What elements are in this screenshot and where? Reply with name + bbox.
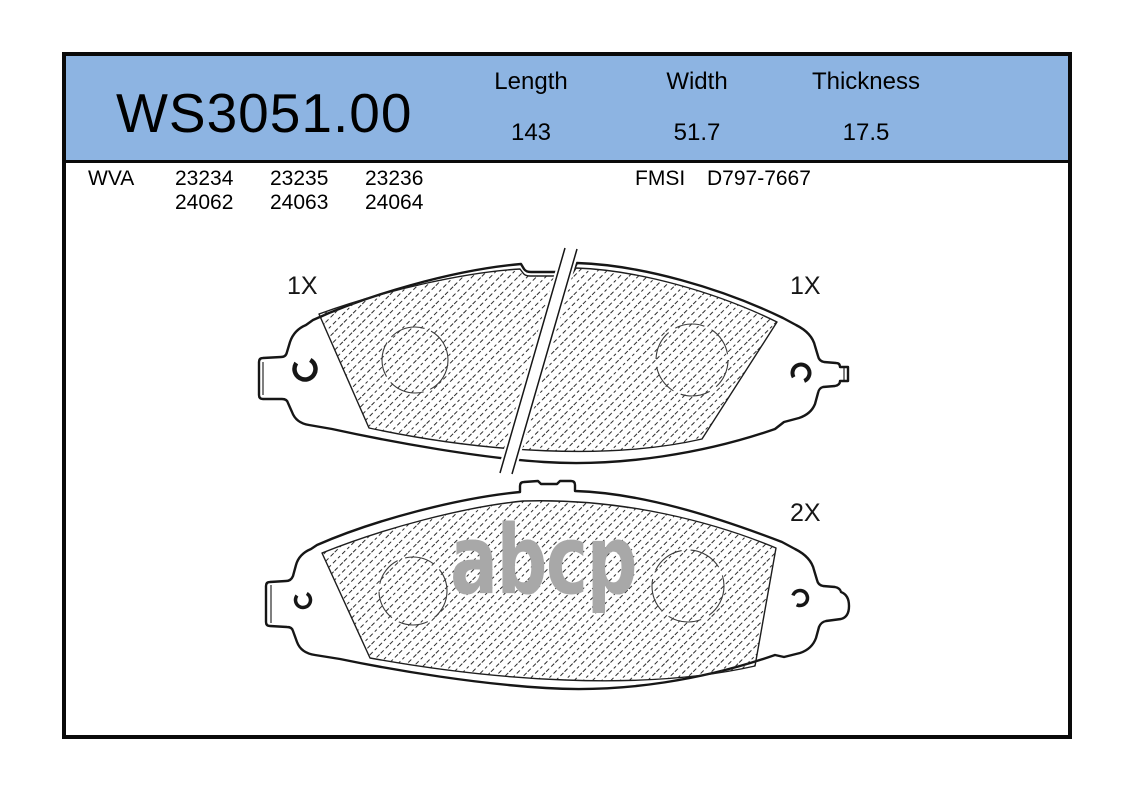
fmsi-value: D797-7667 (707, 168, 811, 190)
watermark-logo: abcp (450, 506, 636, 616)
fmsi-label: FMSI (635, 168, 685, 190)
wva-number: 23236 (365, 168, 423, 190)
brake-pad-drawing: abcp 1X 1X 2X (66, 210, 1068, 735)
brake-pad-top (259, 248, 848, 474)
catalog-page: WS3051.00 Length 143 Width 51.7 Thicknes… (0, 0, 1135, 800)
wva-label: WVA (88, 168, 134, 190)
spec-width-value: 51.7 (602, 120, 792, 145)
spec-length: Length 143 (436, 56, 626, 145)
qty-label-bottom-right: 2X (790, 499, 821, 527)
spec-length-value: 143 (436, 120, 626, 145)
wva-number: 23235 (270, 168, 328, 190)
part-number: WS3051.00 (116, 84, 412, 142)
spec-thickness-label: Thickness (771, 69, 961, 94)
wva-number: 23234 (175, 168, 233, 190)
qty-label-top-left: 1X (287, 272, 318, 300)
spec-length-label: Length (436, 69, 626, 94)
spec-width-label: Width (602, 69, 792, 94)
brake-pad-bottom: abcp (266, 481, 849, 689)
spec-thickness: Thickness 17.5 (771, 56, 961, 145)
spec-thickness-value: 17.5 (771, 120, 961, 145)
part-card: WS3051.00 Length 143 Width 51.7 Thicknes… (62, 52, 1072, 739)
card-header: WS3051.00 Length 143 Width 51.7 Thicknes… (66, 56, 1068, 163)
qty-label-top-right: 1X (790, 272, 821, 300)
spec-width: Width 51.7 (602, 56, 792, 145)
